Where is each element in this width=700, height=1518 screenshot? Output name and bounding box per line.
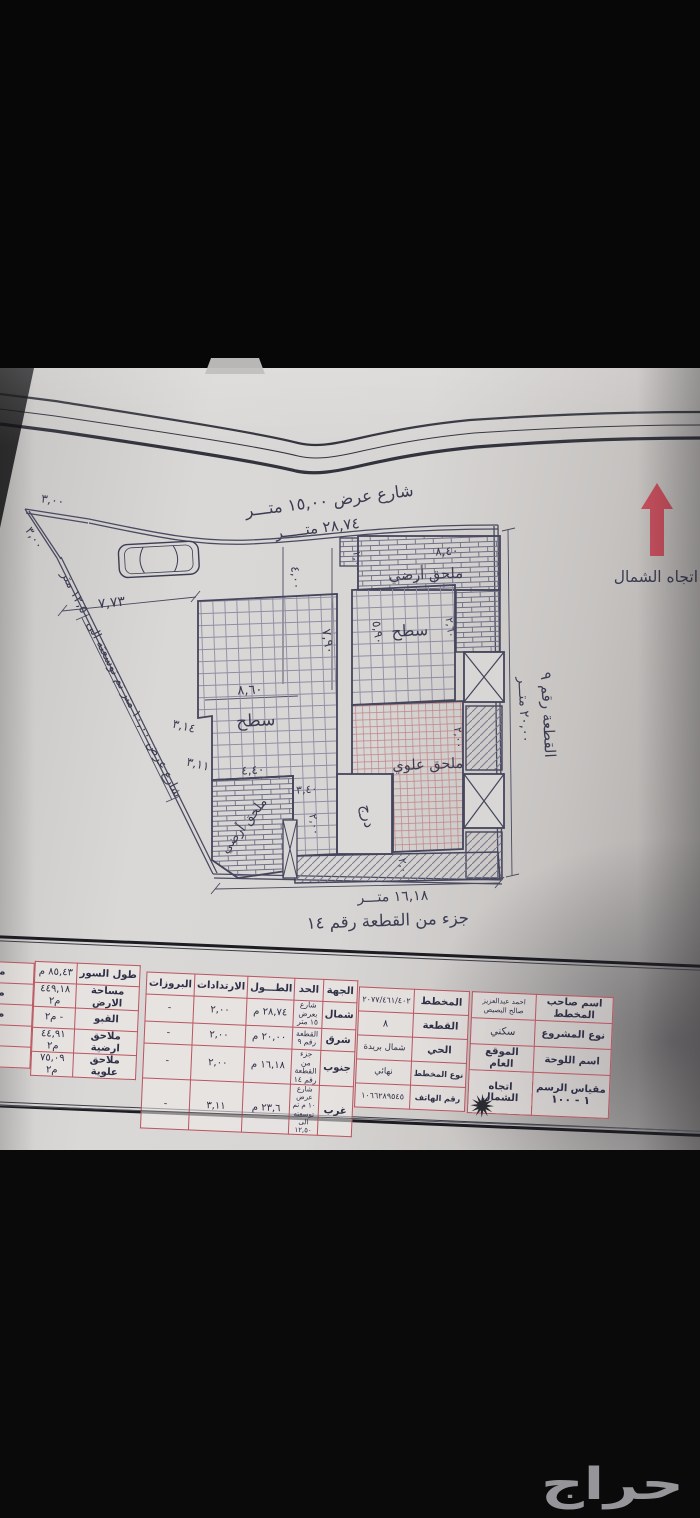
side-strip-1 — [466, 706, 502, 770]
areas-table: طول السور٨٥,٤٣ م مساحة الارض٤٤٩,١٨ م٢ ال… — [30, 961, 141, 1080]
roof-left-label: سطح — [236, 710, 276, 732]
dim-strip-e: ٢,٠٠ — [451, 727, 466, 749]
street-label: شارع عرض ١٥,٠٠ متـــر — [243, 481, 415, 522]
dim-v4: ٤,٠٠ — [288, 566, 304, 590]
dim-corner-a: ٣,٠٠ — [40, 491, 65, 508]
dim-annex-w: ٨,٤٠ — [435, 543, 459, 558]
dim-car-front: ٧,٧٣ — [97, 594, 126, 613]
compass-star-icon — [469, 1092, 496, 1119]
dim-roof-w: ٨,٦٠ — [237, 683, 263, 699]
info-table-right: اسم صاحب المخطط احمد عبدالعزيز صالح البص… — [467, 991, 614, 1119]
roof-right-label: سطح — [391, 620, 429, 642]
south-length-label: ١٦,١٨ متـــر — [356, 888, 429, 907]
bottom-strip — [293, 852, 500, 883]
dim-ga-a: ٣,٤٠ — [296, 782, 318, 796]
east-plot-label: القطعة رقم ٩ — [537, 671, 559, 758]
north-direction-label: اتجاه الشمال — [614, 568, 698, 586]
east-length-label: ٢٠,٠٠ متـــر — [514, 676, 532, 743]
south-plot-label: جزء من القطعة رقم ١٤ — [306, 908, 469, 934]
brick-column-right — [456, 590, 500, 652]
haraj-listing-photo: { "watermark": { "text": "حراج" }, "plan… — [0, 0, 700, 1518]
roof-right — [352, 585, 455, 705]
car-icon — [118, 541, 200, 578]
haraj-watermark-logo: حراج — [541, 1459, 684, 1510]
photo-dark-background-top — [0, 0, 700, 368]
dim-ga-w: ٤,٤٠ — [241, 762, 265, 778]
paper-fold-tip — [205, 358, 265, 374]
dim-v2a: ٢,٠٠ — [350, 551, 364, 572]
dim-corner-b: ٣,٠٠ — [22, 524, 46, 551]
boundary-row-west: غرب شارع عرض ١٠ م تم توسعته الى ١٢,٥٠ ٢٣… — [140, 1078, 353, 1136]
info-table-left: المخطط ٢٠٧٧/٤٦١/٤٠٢ القطعة ٨ الحي شمال ب… — [354, 986, 470, 1112]
upper-annex-label: ملحق علوي — [392, 756, 463, 774]
dim-w314: ٣,١٤ — [171, 717, 197, 736]
north-arrow-icon — [641, 483, 673, 556]
edge-fragment-column: مسا مس مجم ملا عد — [0, 960, 35, 1069]
dim-w311: ٣,١١ — [185, 755, 211, 774]
sheet-frame-lines — [0, 394, 700, 473]
scale-value: ١ - ١٠٠ — [534, 1093, 606, 1109]
